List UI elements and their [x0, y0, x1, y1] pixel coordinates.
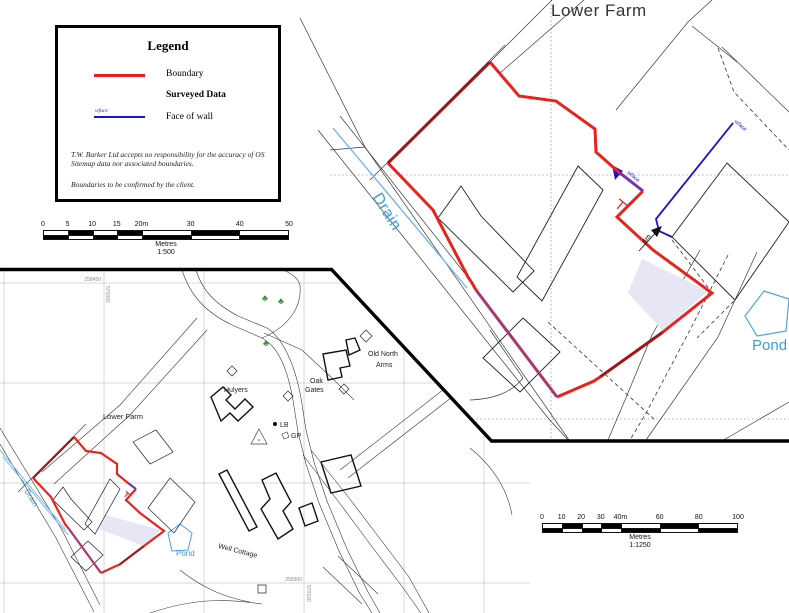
ov-lower-farm-label: Lower Farm — [103, 412, 143, 421]
scalebar-500-unit: Metres — [43, 241, 289, 248]
tick-label: 0 — [41, 221, 45, 228]
grid-easting-top: 570000 — [104, 286, 110, 303]
scalebar-500-bar — [43, 230, 289, 240]
ov-lb-label: LB — [280, 422, 289, 429]
scalebar-1250: 0 10 20 30 40m 60 80 100 Metres 1:1250 — [542, 514, 738, 549]
main-map-dashed-lines — [548, 48, 789, 440]
tick-label: 40m — [614, 514, 628, 521]
svg-text:♣: ♣ — [262, 293, 268, 303]
ov-oak-label: Oak — [310, 378, 323, 385]
tick-label: 0 — [540, 514, 544, 521]
scalebar-500-ratio: 1:500 — [43, 249, 289, 256]
main-map-boundary — [388, 62, 712, 397]
legend-panel: Legend Boundary Surveyed Data wface Face… — [55, 25, 281, 202]
scalebar-500-ticks: 0 5 10 15 20m 30 40 50 — [43, 221, 289, 230]
grid-easting-bottom: 570100 — [305, 585, 311, 602]
tick-label: 10 — [88, 221, 96, 228]
scalebar-500: 0 5 10 15 20m 30 40 50 Metres 1:500 — [43, 221, 289, 256]
tick-label: 80 — [695, 514, 703, 521]
main-map-wall-lines — [656, 123, 733, 237]
legend-wall-swatch — [94, 116, 145, 118]
legend-disclaimer-1: T.W. Barker Ltd accepts no responsibilit… — [71, 150, 268, 169]
scalebar-1250-ratio: 1:1250 — [542, 542, 738, 549]
triangle-dot — [258, 439, 260, 441]
svg-text:♣: ♣ — [263, 338, 269, 348]
ov-hulyers-label: Hulyers — [224, 387, 248, 394]
tick-label: 20 — [577, 514, 585, 521]
tick-label: 60 — [656, 514, 664, 521]
grid-northing-top: 258450 — [84, 277, 101, 283]
tick-label: 100 — [732, 514, 744, 521]
legend-boundary-swatch — [94, 74, 145, 77]
legend-wall-label: Face of wall — [166, 112, 213, 122]
ov-arms-label: Arms — [376, 362, 393, 369]
tick-label: 20m — [135, 221, 149, 228]
legend-surveyed-heading: Surveyed Data — [166, 90, 226, 100]
ov-pond-label: Pond — [176, 549, 195, 558]
page-title: Lower Farm — [551, 1, 647, 21]
scalebar-1250-ticks: 0 10 20 30 40m 60 80 100 — [542, 514, 738, 523]
scalebar-1250-unit: Metres — [542, 534, 738, 541]
dimension-4m-label: 4m — [641, 233, 653, 245]
tick-label: 30 — [597, 514, 605, 521]
tick-label: 10 — [558, 514, 566, 521]
main-pond-label: Pond — [752, 337, 787, 354]
grid-northing-bottom: 258300 — [285, 577, 302, 583]
legend-wface-annotation: wface — [95, 108, 108, 114]
main-map-shaded-parcel — [628, 259, 708, 331]
lb-marker — [273, 422, 277, 426]
main-map-pond-outline — [745, 291, 789, 336]
ov-gp-label: GP — [291, 433, 301, 440]
main-map-buildings — [438, 163, 789, 392]
tick-label: 50 — [285, 221, 293, 228]
legend-disclaimer-2: Boundaries to be confirmed by the client… — [71, 180, 268, 189]
tick-label: 30 — [187, 221, 195, 228]
scalebar-1250-bar — [542, 523, 738, 533]
wface-label-2: wface — [733, 119, 748, 133]
tick-label: 40 — [236, 221, 244, 228]
legend-boundary-label: Boundary — [166, 69, 203, 79]
ov-gates-label: Gates — [305, 387, 324, 394]
ov-old-north-label: Old North — [368, 351, 398, 358]
svg-text:♣: ♣ — [278, 296, 284, 306]
tick-label: 15 — [113, 221, 121, 228]
legend-title: Legend — [58, 38, 278, 54]
tick-label: 5 — [66, 221, 70, 228]
overview-map: 258450 570000 258300 570100 — [0, 268, 530, 613]
